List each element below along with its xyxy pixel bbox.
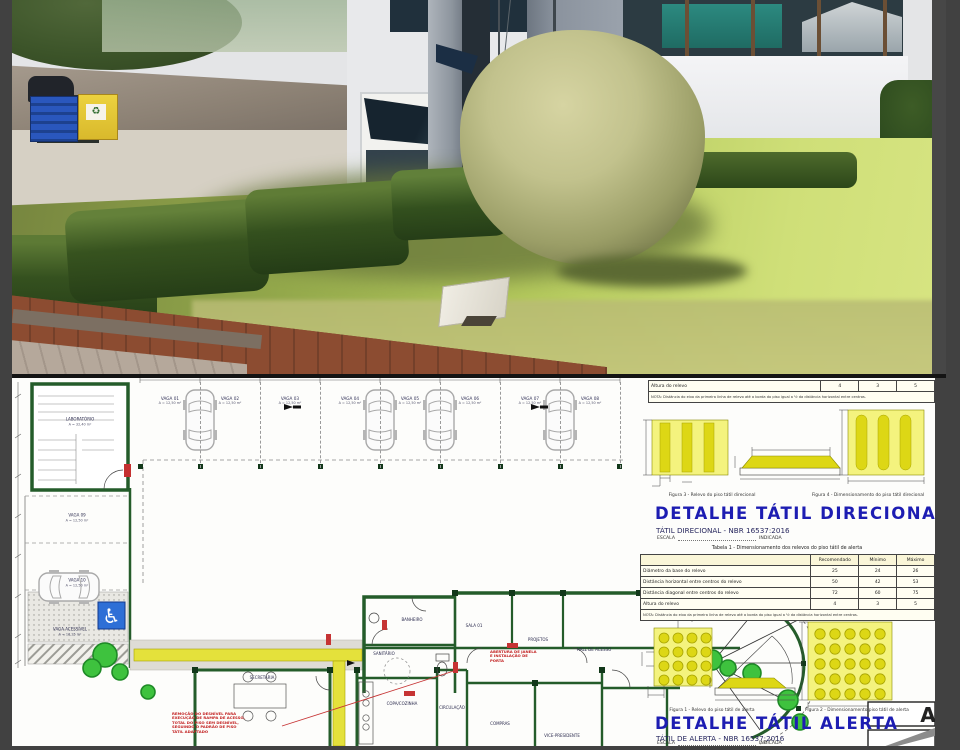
left-stall-label-1: VAGA 09A = 12,50 m² <box>66 514 89 523</box>
parking-stall-3: VAGA 03A = 12,50 m² <box>260 382 321 468</box>
lawn-sign-leg <box>461 316 497 326</box>
recycle-icon: ♻ <box>86 104 106 120</box>
stall-area: A = 12,50 m² <box>380 401 440 406</box>
stall-area: A = 12,50 m² <box>560 401 620 406</box>
detalhe-alerta-escala: ESCALA INDICADA <box>657 741 782 746</box>
stall-area: A = 12,50 m² <box>500 401 560 406</box>
room-compras: COMPRAS <box>490 722 510 727</box>
fig3-directional-plan <box>643 420 728 486</box>
parking-stall-8: VAGA 08A = 12,50 m² <box>560 382 621 468</box>
fig3-directional-profile <box>735 447 840 479</box>
escala-label: ESCALA <box>657 741 675 746</box>
parking-stall-4: VAGA 04A = 12,50 m² <box>320 382 381 468</box>
bush-trunk-shadow <box>557 255 747 287</box>
stall-area: A = 12,50 m² <box>260 401 320 406</box>
site-photo: ♻ <box>12 0 946 378</box>
red-door-mark <box>124 464 131 477</box>
photo-right-frame <box>932 0 946 378</box>
escala-leader <box>678 745 756 746</box>
floor-plan-sheet: ♿ <box>12 378 935 746</box>
figura2-caption: Figura 2 - Dimensionamento piso tátil de… <box>805 708 909 713</box>
hill-haze <box>102 0 352 52</box>
wheelchair-icon: ♿ <box>103 604 121 628</box>
room-circulacao: CIRCULAÇÃO <box>439 706 465 711</box>
detalhe-direcional-escala: ESCALA INDICADA <box>657 536 782 541</box>
window-mullions <box>623 0 903 58</box>
escala-label: ESCALA <box>657 536 675 541</box>
fig2-alert-dimension <box>799 622 892 709</box>
figura1-caption: Figura 1 - Relevo do piso tátil de alert… <box>669 708 754 713</box>
fig1-alert-plan <box>642 616 712 698</box>
parking-stall-2: VAGA 02A = 12,50 m² <box>200 382 261 468</box>
red-note-ramp: REMOÇÃO DO DESNÍVEL PARAEXECUÇÃO DE RAMP… <box>172 712 245 734</box>
tabela1-caption: Tabela 1 - Dimensionamento dos relevos d… <box>712 546 862 551</box>
parking-stall-1: VAGA 01A = 12,50 m² <box>140 382 201 468</box>
accessible-stall-label: VAGA ACESSÍVELA = 16,25 m² <box>53 628 87 637</box>
fig4-directional-dimension <box>839 410 924 484</box>
room-sala01: SALA 01 <box>466 624 483 629</box>
room-secretaria: SECRETARIA <box>250 676 275 681</box>
garage-room <box>32 384 131 490</box>
left-stall-label-2: VAGA 10A = 12,50 m² <box>66 579 89 588</box>
tactile-strip-vertical <box>333 661 345 746</box>
tactile-strip-horizontal <box>134 649 362 661</box>
room-banheiro: BANHEIRO <box>401 618 422 623</box>
figura4-caption: Figura 4 - Dimensionamento do piso tátil… <box>812 493 924 498</box>
parking-stall-5: VAGA 05A = 12,50 m² <box>380 382 441 468</box>
parking-stall-7: VAGA 07A = 12,50 m² <box>500 382 561 468</box>
tabela1: Recomendado Mínimo Máximo Diâmetro da ba… <box>640 554 935 621</box>
escala-leader <box>678 540 756 541</box>
room-vice: VICE-PRESIDENTE <box>544 734 580 739</box>
hedge-front-2 <box>64 198 270 304</box>
room-sanitario: SANITÁRIO <box>373 652 395 657</box>
stall-area: A = 12,50 m² <box>320 401 380 406</box>
parking-stall-6: VAGA 06A = 12,50 m² <box>440 382 501 468</box>
sheet-letter: A <box>920 703 935 727</box>
garage-label: LABORATÓRIOA = 32,40 m² <box>66 418 95 427</box>
stall-area: A = 12,50 m² <box>440 401 500 406</box>
figura3-caption: Figura 3 - Relevo do piso tátil direcion… <box>669 493 756 498</box>
hedge-front-3 <box>244 180 410 276</box>
directional-table-partial: Altura do relevo 4 3 5 NOTA: Distância d… <box>648 380 935 403</box>
stall-area: A = 12,50 m² <box>200 401 260 406</box>
room-copa: COPA/COZINHA <box>387 702 418 707</box>
red-note-window: ABERTURA DE JANELAE INSTALAÇÃO DEPORTA <box>490 650 537 663</box>
detalhe-direcional-title: DETALHE TÁTIL DIRECIONAL <box>655 504 935 523</box>
detalhe-direcional-subtitle: TÁTIL DIRECIONAL - NBR 16537:2016 <box>656 526 790 535</box>
stall-area: A = 12,50 m² <box>140 401 200 406</box>
roof-projection-dashed <box>143 460 624 586</box>
room-projetos: PROJETOS <box>528 638 548 643</box>
room-hall: HALL DE ACESSO <box>577 648 612 653</box>
blue-crate <box>30 96 78 142</box>
escala-value: INDICADA <box>759 741 782 746</box>
detalhe-alerta-title: DETALHE TÁTIL ALERTA <box>655 714 898 733</box>
escala-value: INDICADA <box>759 536 782 541</box>
